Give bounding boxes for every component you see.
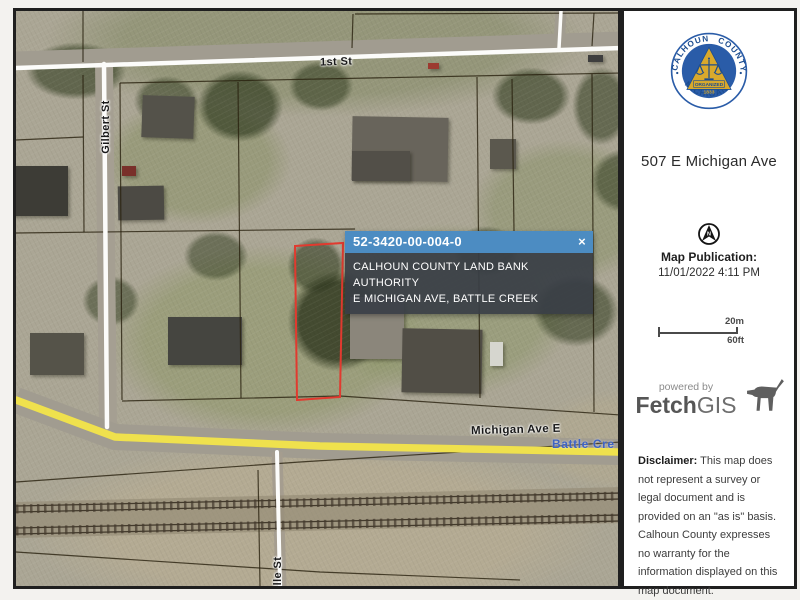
publication-datetime: 11/01/2022 4:11 PM bbox=[624, 267, 794, 279]
popup-body: CALHOUN COUNTY LAND BANK AUTHORITY E MIC… bbox=[345, 253, 593, 314]
disclaimer-label: Disclaimer: bbox=[638, 455, 697, 467]
selected-parcel-outline[interactable] bbox=[295, 243, 343, 400]
scale-bar: 20m 60ft bbox=[658, 316, 740, 356]
disclaimer-text: Disclaimer: This map does not represent … bbox=[638, 452, 784, 600]
close-icon[interactable]: × bbox=[578, 231, 586, 253]
north-arrow-icon: N bbox=[697, 222, 721, 246]
street-label-ville-st: ville St bbox=[272, 549, 284, 586]
water-label-battle-creek: Battle Cre bbox=[552, 437, 615, 451]
popup-header[interactable]: 52-3420-00-004-0 × bbox=[345, 231, 593, 253]
railroad-tracks bbox=[16, 493, 618, 534]
scale-line bbox=[658, 332, 738, 334]
street-label-michigan-ave: Michigan Ave E bbox=[471, 423, 561, 437]
pointer-dog-icon bbox=[746, 378, 786, 414]
fetchgis-logo-text: FetchGIS bbox=[624, 392, 748, 419]
street-label-1st-st: 1st St bbox=[320, 55, 353, 68]
scale-imperial-label: 60ft bbox=[727, 335, 744, 346]
street-label-gilbert-st: Gilbert St bbox=[100, 97, 112, 157]
scale-metric-label: 20m bbox=[725, 316, 744, 327]
north-letter: N bbox=[707, 232, 711, 238]
publication-label: Map Publication: bbox=[624, 250, 794, 264]
popup-owner-line: CALHOUN COUNTY LAND BANK AUTHORITY bbox=[353, 259, 585, 291]
calhoun-county-seal: CALHOUN COUNTY MICHIGAN ORGANIZED 1833 bbox=[670, 30, 748, 114]
disclaimer-body: This map does not represent a survey or … bbox=[638, 455, 777, 597]
seal-year-text: 1833 bbox=[704, 90, 715, 96]
popup-address-line: E MICHIGAN AVE, BATTLE CREEK bbox=[353, 291, 585, 307]
brand-fetch: Fetch bbox=[636, 392, 697, 418]
parcel-info-popup: 52-3420-00-004-0 × CALHOUN COUNTY LAND B… bbox=[345, 231, 593, 314]
seal-banner-text: ORGANIZED bbox=[695, 82, 724, 87]
map-info-sidebar: CALHOUN COUNTY MICHIGAN ORGANIZED 1833 5… bbox=[621, 8, 797, 589]
address-title: 507 E Michigan Ave bbox=[624, 153, 794, 170]
popup-parcel-id: 52-3420-00-004-0 bbox=[353, 234, 462, 249]
brand-gis: GIS bbox=[697, 392, 737, 418]
map-panel: 1st St Gilbert St Michigan Ave E Battle … bbox=[13, 8, 621, 589]
aerial-map[interactable]: 1st St Gilbert St Michigan Ave E Battle … bbox=[16, 11, 618, 586]
